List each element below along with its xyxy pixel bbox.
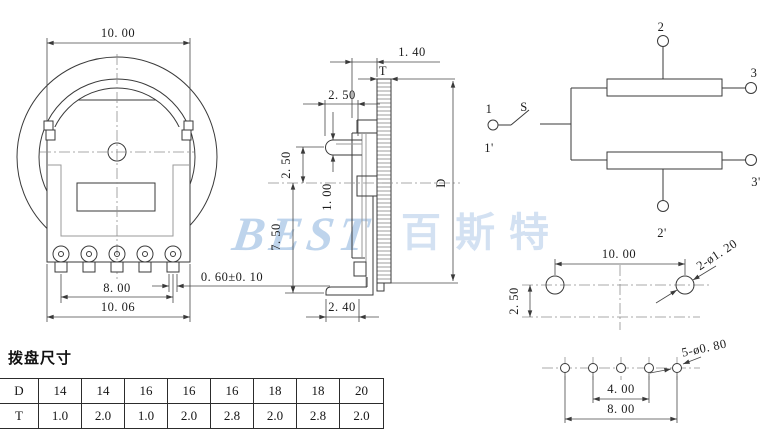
dial-size-table: D 14 14 16 16 16 18 18 20 T 1.0 2.0 1.0 … [0,378,384,429]
dim-body-height: 7. 50 [269,223,283,251]
table-cell: 2.8 [211,404,254,429]
label-terminal-3: 3 [751,66,758,80]
label-thickness: T [379,64,387,78]
label-terminal-2b: 2' [657,226,667,240]
dim-lug-thickness: 1. 00 [320,183,334,211]
table-cell: 16 [168,379,211,404]
dim-foot-length: 2. 40 [328,300,356,314]
table-cell: 14 [82,379,125,404]
table-cell: 2.0 [340,404,384,429]
table-cell: 14 [39,379,82,404]
note-mount-holes: 2-ø1. 20 [694,236,740,273]
dim-pin-width: 0. 60±0. 10 [201,270,263,284]
wheel-hub-step [377,283,384,291]
dim-lug-protrusion: 2. 50 [328,88,356,102]
label-terminal-1b: 1' [484,141,494,155]
table-cell: 20 [340,379,384,404]
label-terminal-3b: 3' [751,175,761,189]
terminal-2b-node [658,201,669,212]
terminal-1-node [488,120,498,130]
label-diameter: D [434,178,448,188]
side-view: 1. 40 T D 2. 50 2. 50 1. 00 [268,45,460,322]
dim-body-width: 10. 06 [101,300,135,314]
table-cell: 16 [211,379,254,404]
thumbwheel-body [377,79,391,283]
pcb-hole-layout: 10. 00 2. 50 2-ø1. 20 [507,236,740,423]
dim-row-offset: 2. 50 [507,287,521,315]
table-row-d: D 14 14 16 16 16 18 18 20 [0,379,384,404]
table-cell: 2.0 [168,404,211,429]
mount-clip-left [44,121,55,140]
mount-tab [354,262,366,276]
locating-lug [326,140,363,155]
mount-clip-right [182,121,193,140]
table-cell: 16 [125,379,168,404]
table-cell: 2.8 [297,404,340,429]
terminal-3-node [746,83,757,94]
row-label-d: D [0,379,39,404]
technical-drawing-page: BEST百斯特 [0,0,767,431]
resistive-element-top [607,79,722,96]
dim-wheel-gap: 1. 40 [398,45,426,59]
pin-row [55,262,179,272]
circuit-schematic: 1 S 1' 2 3 3' 2' [484,20,761,240]
dim-lug-offset: 2. 50 [279,151,293,179]
dim-pin-span: 8. 00 [103,281,131,295]
dim-pin-inner: 4. 00 [607,382,635,396]
label-terminal-1: 1 [486,102,493,116]
terminal-2-node [658,36,669,47]
resistive-element-bottom [607,152,722,169]
table-cell: 18 [297,379,340,404]
table-cell: 18 [254,379,297,404]
table-cell: 1.0 [125,404,168,429]
dim-top-width: 10. 00 [101,26,135,40]
table-cell: 2.0 [82,404,125,429]
terminal-3b-node [746,155,757,166]
note-pin-holes: 5-ø0. 80 [680,336,728,359]
label-switch: S [520,100,527,114]
housing-mask [47,127,190,262]
dim-hole-span: 10. 00 [602,247,636,261]
row-label-t: T [0,404,39,429]
table-title: 拨盘尺寸 [8,347,72,368]
drawing-canvas: 10. 00 8. 00 0. 60±0. 10 10. 06 [0,0,767,431]
label-terminal-2: 2 [658,20,665,34]
table-row-t: T 1.0 2.0 1.0 2.0 2.8 2.0 2.8 2.0 [0,404,384,429]
table-cell: 1.0 [39,404,82,429]
dim-pin-span: 8. 00 [607,402,635,416]
table-cell: 2.0 [254,404,297,429]
